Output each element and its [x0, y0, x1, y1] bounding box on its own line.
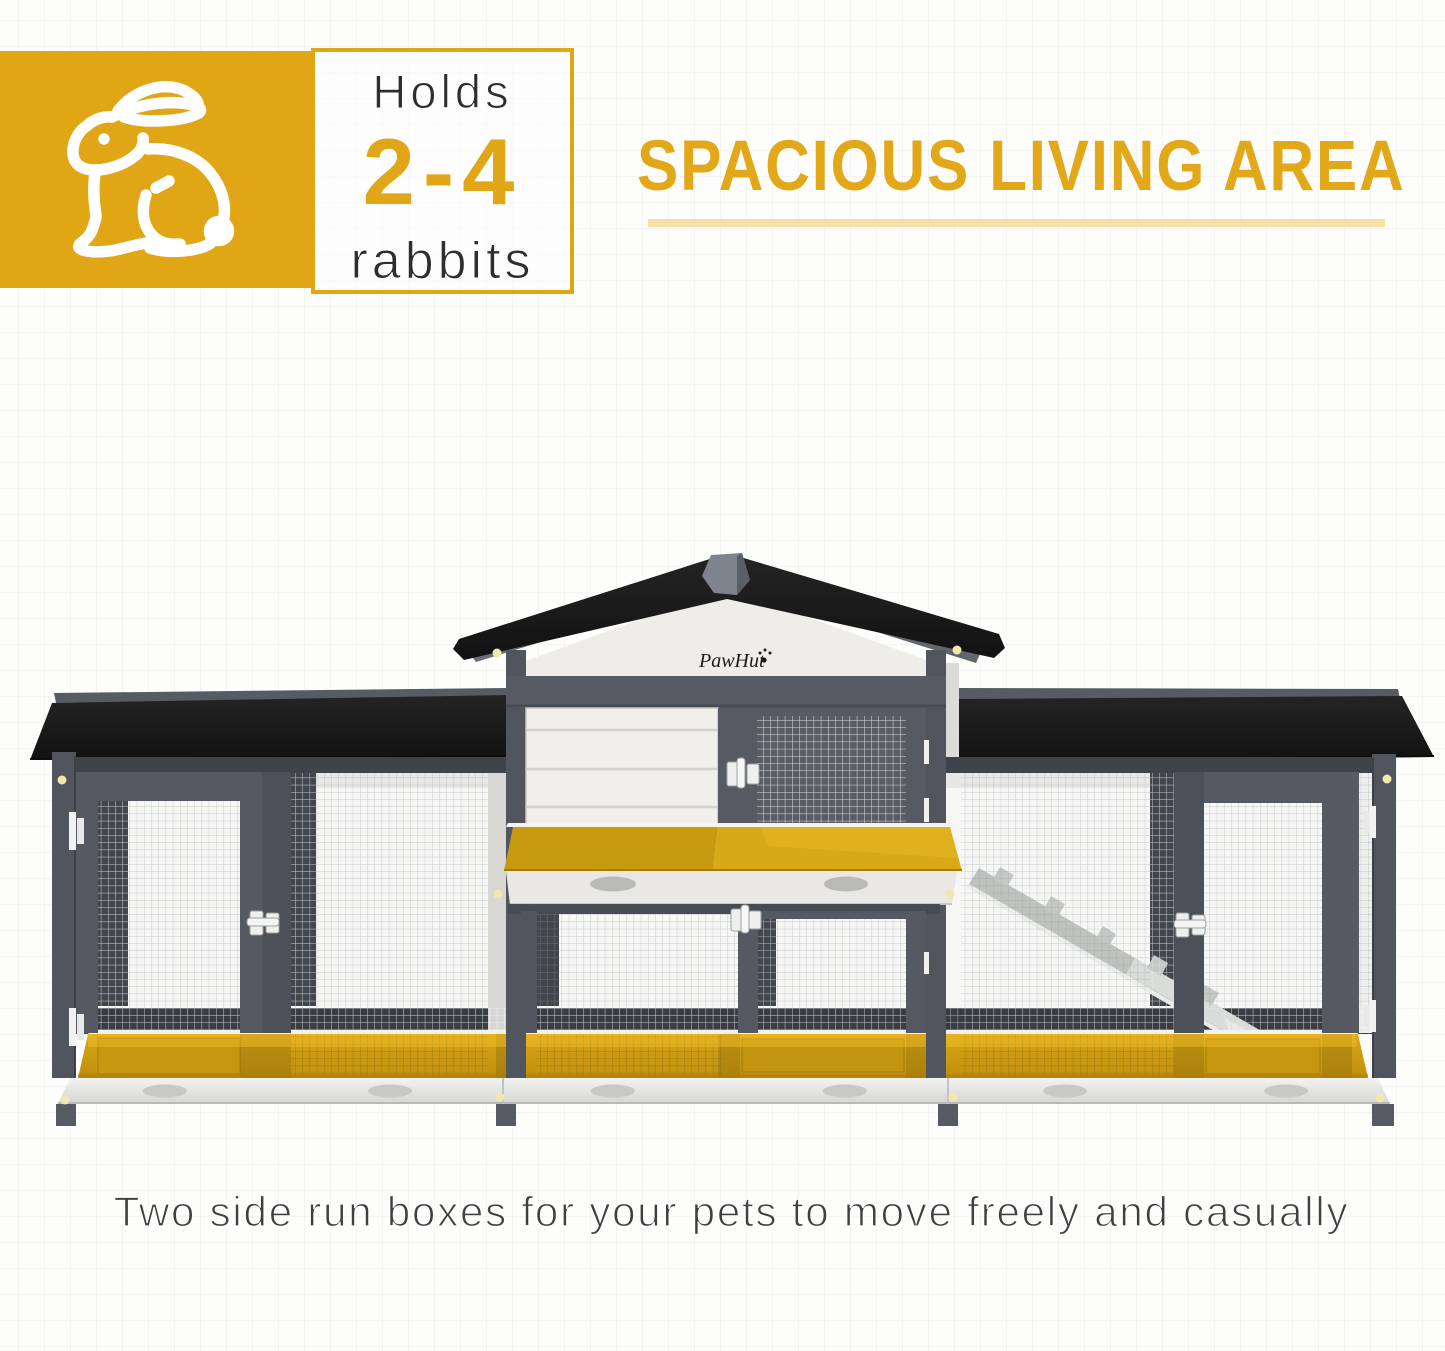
svg-text:PawHut: PawHut: [698, 650, 765, 672]
